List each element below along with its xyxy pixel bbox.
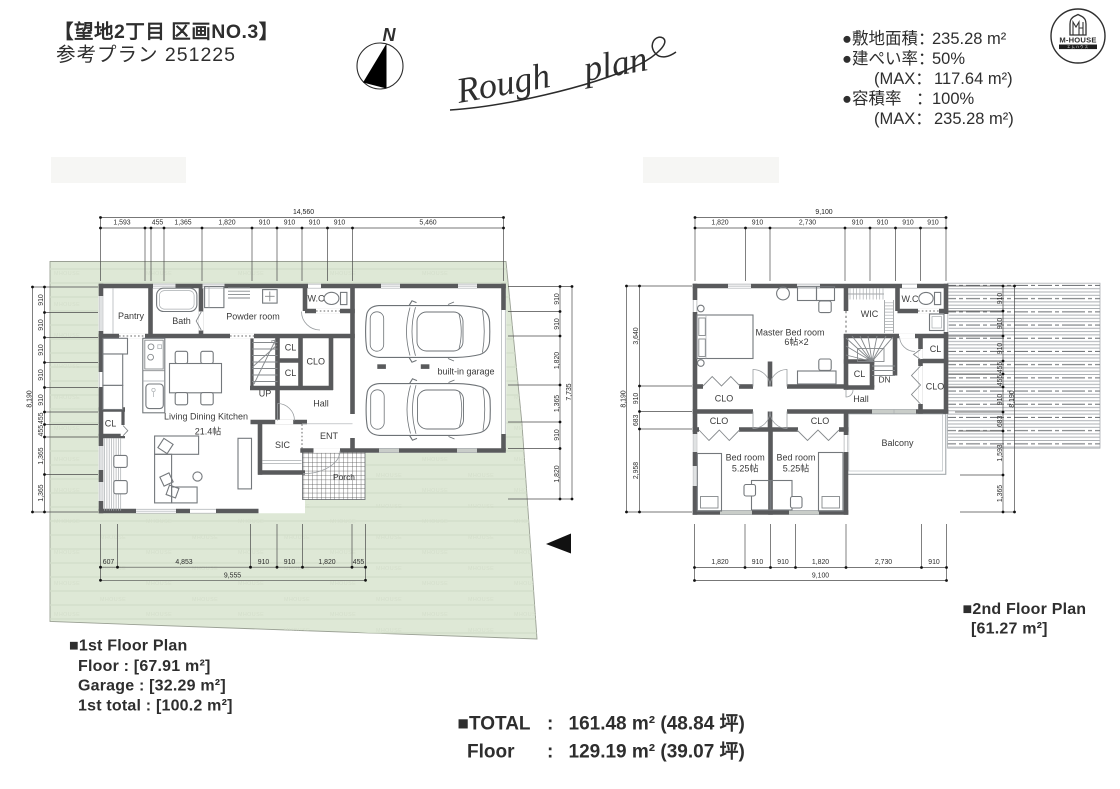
svg-text:5,460: 5,460 [419,220,436,227]
svg-text:1,820: 1,820 [218,220,235,227]
svg-text:1,820: 1,820 [711,559,728,566]
svg-text:910: 910 [852,220,864,227]
svg-text:455: 455 [997,375,1004,387]
svg-text:683: 683 [633,414,640,426]
svg-text:CL: CL [105,419,117,429]
svg-text:■2nd Floor Plan: ■2nd Floor Plan [963,601,1087,618]
svg-text:Pantry: Pantry [118,311,145,321]
svg-text::: : [547,714,553,735]
svg-text:Balcony: Balcony [881,438,914,448]
svg-text:■1st Floor Plan: ■1st Floor Plan [69,638,187,655]
svg-text:(MAX：: (MAX： [874,70,932,88]
svg-text:5.25帖: 5.25帖 [732,462,759,473]
svg-text:1,365: 1,365 [997,485,1004,502]
svg-text:SIC: SIC [275,440,291,450]
svg-text:910: 910 [752,220,764,227]
svg-text:5.25帖: 5.25帖 [783,462,810,473]
svg-text:100%: 100% [932,90,975,108]
svg-text:(MAX：: (MAX： [874,110,932,128]
svg-text:1st total : [100.2 m²]: 1st total : [100.2 m²] [78,698,233,715]
svg-text:3,640: 3,640 [633,327,640,344]
svg-text:【望地2丁目 区画NO.3】: 【望地2丁目 区画NO.3】 [54,20,279,43]
svg-text:CLO: CLO [715,394,734,404]
svg-text:455: 455 [152,220,164,227]
svg-text:DN: DN [878,375,890,385]
svg-text:2,958: 2,958 [633,462,640,479]
svg-text:910: 910 [997,293,1004,305]
svg-text:CL: CL [854,369,866,379]
svg-text:607: 607 [103,559,115,566]
svg-text:■TOTAL: ■TOTAL [458,714,531,735]
svg-text:1,820: 1,820 [812,559,829,566]
svg-text:9,100: 9,100 [815,209,832,216]
svg-text:910: 910 [38,294,45,306]
svg-text:1,365: 1,365 [554,395,561,412]
svg-text:8,190: 8,190 [27,390,34,407]
svg-text:129.19 m² (39.07 坪): 129.19 m² (39.07 坪) [569,741,745,763]
svg-text:910: 910 [38,369,45,381]
svg-text:CLO: CLO [710,416,729,426]
svg-text:8,190: 8,190 [1009,390,1016,407]
svg-text:1,593: 1,593 [113,220,130,227]
svg-text:Hall: Hall [853,394,869,404]
svg-text:N: N [383,25,397,45]
svg-text:Garage : [32.29 m²]: Garage : [32.29 m²] [78,678,226,695]
svg-text:●敷地面積：: ●敷地面積： [842,29,934,48]
svg-text:Floor : [67.91 m²]: Floor : [67.91 m²] [78,658,211,675]
svg-text:：: ： [916,90,933,108]
svg-text:910: 910 [38,319,45,331]
svg-text:CLO: CLO [307,356,326,366]
svg-text:参考プラン 251225: 参考プラン 251225 [56,44,236,66]
svg-text:910: 910 [927,220,939,227]
svg-text:455: 455 [353,559,365,566]
svg-text:910: 910 [928,559,940,566]
svg-text:●容積率: ●容積率 [842,89,901,108]
svg-text:455: 455 [997,362,1004,374]
svg-text:683: 683 [997,415,1004,427]
svg-text:6帖×2: 6帖×2 [784,336,808,347]
svg-text:1,820: 1,820 [554,352,561,369]
svg-text:●建ぺい率：: ●建ぺい率： [842,49,934,68]
svg-text:CL: CL [285,343,297,353]
svg-text:Bed room: Bed room [726,453,765,463]
svg-text:910: 910 [777,559,789,566]
svg-text:Hall: Hall [313,399,329,409]
svg-text:235.28 m²): 235.28 m²) [934,110,1014,128]
svg-text:Floor: Floor [467,742,515,763]
svg-text:4,853: 4,853 [175,559,192,566]
svg-text:1,820: 1,820 [318,559,335,566]
svg-text:161.48 m² (48.84 坪): 161.48 m² (48.84 坪) [569,713,745,735]
svg-text:CLO: CLO [926,382,945,392]
svg-text:910: 910 [284,220,296,227]
svg-text:2,730: 2,730 [875,559,892,566]
svg-text:455: 455 [38,412,45,424]
svg-text:910: 910 [334,220,346,227]
svg-text:1,365: 1,365 [38,447,45,464]
svg-text:910: 910 [902,220,914,227]
svg-text:910: 910 [554,318,561,330]
svg-text:Powder room: Powder room [226,312,280,322]
svg-text::: : [547,742,553,763]
svg-text:[61.27 m²]: [61.27 m²] [971,621,1048,638]
svg-text:CL: CL [285,368,297,378]
svg-text:M-HOUSE: M-HOUSE [1059,36,1096,45]
svg-text:910: 910 [633,393,640,405]
svg-text:1,593: 1,593 [997,444,1004,461]
svg-text:910: 910 [997,343,1004,355]
svg-text:Bath: Bath [172,316,191,326]
svg-text:W.C: W.C [308,294,325,304]
svg-text:Bed room: Bed room [776,453,815,463]
svg-text:Master Bed room: Master Bed room [755,328,824,338]
svg-text:1,820: 1,820 [711,220,728,227]
svg-text:W.C: W.C [902,294,919,304]
svg-text:910: 910 [997,394,1004,406]
svg-text:117.64 m²): 117.64 m²) [934,70,1013,88]
svg-text:9,555: 9,555 [224,572,241,579]
svg-text:21.4帖: 21.4帖 [195,426,222,437]
svg-text:7,735: 7,735 [566,383,573,400]
svg-text:CL: CL [930,344,942,354]
svg-text:1,365: 1,365 [174,220,191,227]
svg-text:1,820: 1,820 [554,465,561,482]
svg-text:9,100: 9,100 [812,573,829,580]
svg-text:Porch: Porch [333,472,355,482]
svg-text:910: 910 [38,394,45,406]
svg-text:ENT: ENT [320,431,339,441]
svg-text:910: 910 [259,220,271,227]
svg-text:910: 910 [258,559,270,566]
svg-text:Living Dining Kitchen: Living Dining Kitchen [164,412,248,422]
svg-text:910: 910 [284,559,296,566]
svg-text:910: 910 [309,220,321,227]
svg-text:910: 910 [752,559,764,566]
svg-text:910: 910 [38,344,45,356]
svg-text:エムハウス: エムハウス [1067,44,1089,49]
svg-text:8,190: 8,190 [621,390,628,407]
svg-text:235.28 m²: 235.28 m² [932,30,1007,48]
svg-text:910: 910 [554,293,561,305]
svg-text:UP: UP [259,389,272,399]
svg-text:WIC: WIC [861,309,879,319]
svg-text:Rough: Rough [452,55,553,111]
svg-text:910: 910 [554,429,561,441]
svg-text:910: 910 [997,318,1004,330]
svg-text:CLO: CLO [811,416,830,426]
svg-text:14,560: 14,560 [293,209,314,216]
svg-text:455: 455 [38,425,45,437]
svg-text:50%: 50% [932,50,965,68]
svg-text:910: 910 [877,220,889,227]
svg-text:1,365: 1,365 [38,484,45,501]
svg-text:built-in garage: built-in garage [437,366,494,376]
svg-text:2,730: 2,730 [799,220,816,227]
